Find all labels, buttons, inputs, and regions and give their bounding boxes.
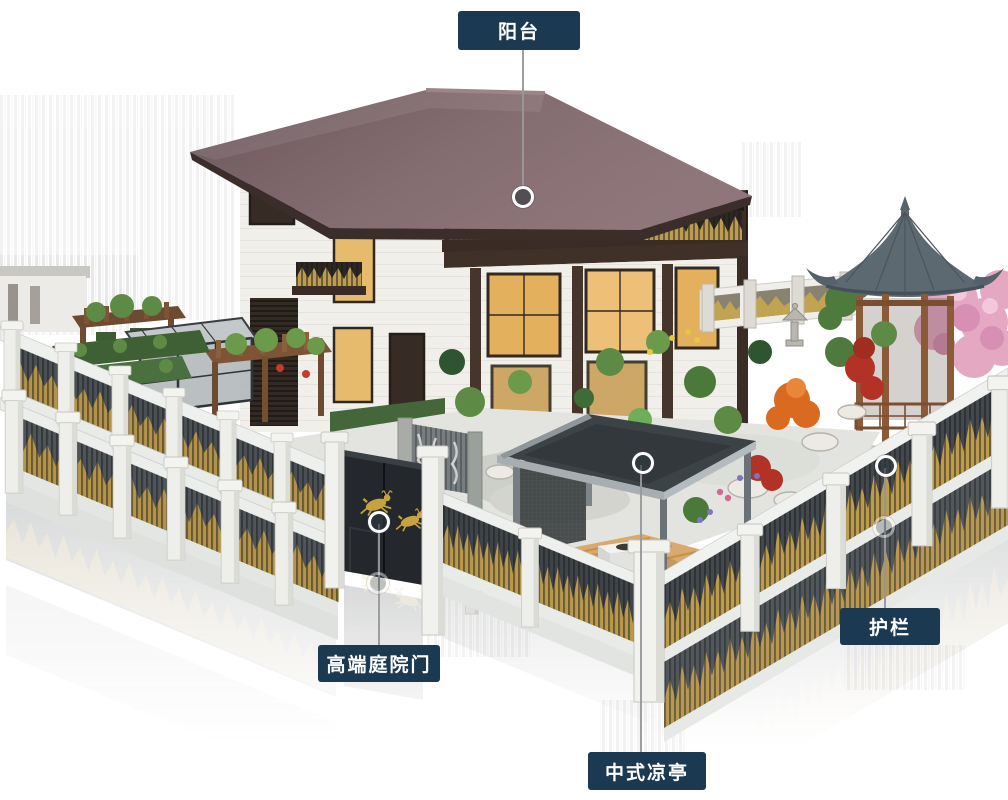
scene-illustration	[0, 0, 1008, 800]
callout-label-pavilion: 中式凉亭	[588, 752, 706, 790]
leader-line	[640, 465, 642, 752]
target-marker-reflection	[367, 572, 389, 594]
gazebo-roof	[806, 196, 1004, 297]
orange-maple	[766, 378, 820, 430]
callout-label-guardrail: 护栏	[840, 608, 940, 645]
callout-label-gate: 高端庭院门	[318, 645, 440, 682]
target-marker	[512, 186, 534, 208]
target-marker	[875, 455, 897, 477]
target-marker-reflection	[873, 516, 895, 538]
small-balcony	[292, 262, 366, 295]
leader-line	[522, 50, 524, 187]
leader-line	[884, 468, 886, 608]
callout-label-balcony: 阳台	[458, 11, 580, 50]
annotated-villa-rendering: 阳台 高端庭院门 中式凉亭 护栏	[0, 0, 1008, 800]
target-marker	[632, 452, 654, 474]
target-marker	[368, 511, 390, 533]
